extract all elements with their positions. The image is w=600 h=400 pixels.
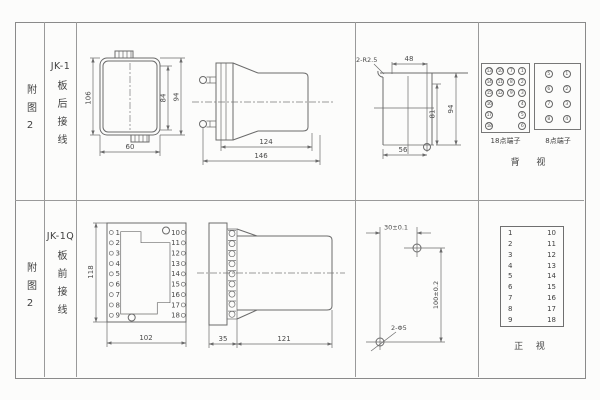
plate-term-label-13: 13 — [171, 260, 180, 268]
plate-mounting-hole-bottom — [128, 314, 135, 321]
plate-term-circle-3 — [109, 251, 113, 255]
note-2-phi5: 2-Φ5 — [391, 324, 407, 332]
connection-row: 211 — [501, 239, 563, 249]
jk1q-side-view — [197, 223, 345, 325]
terminal-row-18: 164 — [482, 99, 529, 108]
terminal-18-2: 2 — [518, 78, 526, 86]
plate-term-label-16: 16 — [171, 291, 180, 299]
screw-terminal — [229, 311, 235, 317]
wiring-label-rear: 板后接线 — [53, 80, 68, 152]
plate-term-circle-13 — [181, 262, 185, 266]
dim-81: 81 — [429, 110, 437, 119]
terminal-block-18: 131071141182151293164175186 — [481, 63, 530, 133]
plate-term-circle-5 — [109, 272, 113, 276]
terminal-18-17: 17 — [485, 111, 493, 119]
terminal-18-9: 9 — [507, 89, 515, 97]
conn-right-11: 11 — [547, 239, 556, 249]
appendix-label-top: 附图2 — [23, 84, 38, 139]
plate-term-label-18: 18 — [171, 312, 180, 320]
label-8-point: 8点端子 — [531, 136, 585, 146]
jk1-front-view — [100, 51, 160, 142]
screw-terminal — [229, 231, 235, 237]
terminal-8-7: 7 — [545, 100, 553, 108]
terminal-18-12: 12 — [496, 89, 504, 97]
notch-leader-line — [374, 64, 384, 74]
dim-94-cutout: 94 — [447, 104, 455, 113]
screw-terminal — [229, 291, 235, 297]
front-view-table-cell: 110211312413514615716817918 正 视 — [478, 200, 585, 378]
terminal-row-18: 175 — [482, 110, 529, 119]
plate-term-label-3: 3 — [116, 250, 120, 258]
conn-left-7: 7 — [508, 293, 512, 303]
connection-row: 716 — [501, 293, 563, 303]
plate-term-label-10: 10 — [171, 229, 180, 237]
terminal-row-18: 151293 — [482, 88, 529, 97]
conn-left-8: 8 — [508, 304, 512, 314]
connection-row: 615 — [501, 282, 563, 292]
terminal-row-8: 84 — [535, 114, 580, 123]
conn-left-3: 3 — [508, 250, 512, 260]
conn-right-16: 16 — [547, 293, 556, 303]
top-key-tab — [115, 51, 133, 58]
cell-model-bottom: JK-1Q 板前接线 — [45, 201, 76, 377]
appendix-label-bottom: 附图2 — [23, 262, 38, 317]
note-2-r2.5: 2-R2.5 — [356, 56, 377, 64]
side-view-dimensions: 124 146 — [203, 128, 320, 165]
drill-dimensions: 30±0.1 100±0.2 2-Φ5 — [366, 224, 441, 352]
drawing-sheet: 附图2 JK-1 板后接线 106 84 — [0, 0, 600, 400]
terminal-row-8: 51 — [535, 70, 580, 79]
plate-term-circle-10 — [181, 231, 185, 235]
plate-step-outline — [121, 232, 170, 314]
jk1-panel-cutout-drawing: 2-R2.5 48 81 94 56 — [355, 22, 478, 200]
plate-term-circle-7 — [109, 293, 113, 297]
bottom-key-tab — [131, 135, 149, 142]
terminal-18-11: 11 — [496, 78, 504, 86]
connection-table: 110211312413514615716817918 — [500, 226, 564, 327]
dim-118: 118 — [87, 265, 95, 278]
terminal-18-5: 5 — [518, 111, 526, 119]
plate-term-circle-6 — [109, 282, 113, 286]
conn-left-9: 9 — [508, 315, 512, 325]
screw-terminal — [229, 301, 235, 307]
plate-term-circle-12 — [181, 251, 185, 255]
terminal-18-14: 14 — [485, 78, 493, 86]
screw-terminal — [229, 241, 235, 247]
dim-56: 56 — [399, 146, 408, 154]
plate-term-label-11: 11 — [171, 239, 180, 247]
screw-terminal — [229, 251, 235, 257]
plate-term-label-5: 5 — [116, 270, 120, 278]
conn-right-15: 15 — [547, 282, 556, 292]
plate-term-circle-9 — [109, 313, 113, 317]
dim-48: 48 — [405, 55, 414, 63]
plate-term-label-8: 8 — [116, 301, 120, 309]
terminal-block-8: 51627384 — [534, 63, 581, 130]
jk1-side-view — [192, 63, 335, 140]
terminal-8-2: 2 — [563, 85, 571, 93]
plate-term-circle-4 — [109, 262, 113, 266]
dim-30: 30±0.1 — [384, 224, 408, 232]
dim-84: 84 — [160, 93, 168, 102]
mounting-flange — [216, 63, 233, 140]
front-flange — [209, 223, 227, 325]
terminal-18-16: 16 — [485, 100, 493, 108]
terminal-row-18: 186 — [482, 121, 529, 130]
screw-terminal — [229, 261, 235, 267]
dim-146: 146 — [254, 152, 268, 160]
conn-right-12: 12 — [547, 250, 556, 260]
plate-term-circle-2 — [109, 241, 113, 245]
screw-terminal — [229, 281, 235, 287]
terminal-18-10: 10 — [496, 67, 504, 75]
rear-view-terminals-cell: 131071141182151293164175186 51627384 18点… — [478, 22, 585, 200]
terminal-8-1: 1 — [563, 70, 571, 78]
terminal-8-4: 4 — [563, 115, 571, 123]
connection-row: 413 — [501, 261, 563, 271]
screw-terminal — [229, 271, 235, 277]
drilling-plan-drawing: 30±0.1 100±0.2 2-Φ5 — [355, 200, 478, 378]
conn-left-4: 4 — [508, 261, 512, 271]
front-view-label: 正 视 — [500, 339, 564, 352]
terminal-screw-bottom — [200, 121, 217, 128]
terminal-row-18: 131071 — [482, 66, 529, 75]
connection-row: 918 — [501, 315, 563, 325]
dim-60: 60 — [126, 143, 135, 151]
cutout-dimensions: 2-R2.5 48 81 94 56 — [356, 55, 456, 159]
cell-model-top: JK-1 板后接线 — [45, 23, 76, 200]
plate-term-label-7: 7 — [116, 291, 120, 299]
wiring-label-front: 板前接线 — [53, 250, 68, 322]
plate-term-label-2: 2 — [116, 239, 120, 247]
terminal-screws — [228, 230, 236, 317]
conn-right-10: 10 — [547, 228, 556, 238]
plate-term-circle-18 — [181, 313, 185, 317]
terminal-18-4: 4 — [518, 100, 526, 108]
connection-row: 817 — [501, 304, 563, 314]
conn-left-1: 1 — [508, 228, 512, 238]
hole-leader-line — [371, 332, 396, 351]
jk1q-front-plate: 123456789101112131415161718 — [107, 223, 186, 322]
conn-left-5: 5 — [508, 271, 512, 281]
terminal-18-13: 13 — [485, 67, 493, 75]
model-label-jk1q: JK-1Q — [47, 231, 74, 242]
cell-appendix-bottom: 附图2 — [16, 201, 44, 377]
plate-term-circle-14 — [181, 272, 185, 276]
conn-right-13: 13 — [547, 261, 556, 271]
terminal-screw-top — [200, 77, 217, 84]
dim-35: 35 — [219, 335, 228, 343]
dim-121: 121 — [277, 335, 290, 343]
conn-left-2: 2 — [508, 239, 512, 249]
terminal-8-6: 6 — [545, 85, 553, 93]
terminal-18-3: 3 — [518, 89, 526, 97]
conn-right-18: 18 — [547, 315, 556, 325]
dim-124: 124 — [259, 138, 273, 146]
plate-term-label-6: 6 — [116, 281, 121, 289]
label-18-point: 18点端子 — [478, 136, 533, 146]
jk1q-outline-drawing: 123456789101112131415161718 118 102 — [76, 200, 355, 378]
terminal-18-7: 7 — [507, 67, 515, 75]
model-label-jk1: JK-1 — [51, 61, 71, 72]
dim-102: 102 — [139, 334, 152, 342]
plate-mounting-hole-top — [163, 227, 170, 234]
plate-term-label-12: 12 — [171, 250, 180, 258]
conn-right-14: 14 — [547, 271, 556, 281]
plate-term-circle-1 — [109, 231, 113, 235]
jk1-outline-drawing: 106 84 94 60 — [76, 22, 355, 200]
terminal-18-1: 1 — [518, 67, 526, 75]
rear-view-label: 背 视 — [478, 155, 585, 168]
plate-term-label-4: 4 — [116, 260, 121, 268]
terminal-18-6: 6 — [518, 122, 526, 130]
plate-term-circle-17 — [181, 303, 185, 307]
plate-term-circle-8 — [109, 303, 113, 307]
cell-appendix-top: 附图2 — [16, 23, 44, 200]
plate-term-circle-15 — [181, 282, 185, 286]
terminal-8-3: 3 — [563, 100, 571, 108]
plate-term-label-15: 15 — [171, 281, 180, 289]
plate-term-label-9: 9 — [116, 312, 120, 320]
dim-106: 106 — [85, 91, 93, 105]
terminal-8-5: 5 — [545, 70, 553, 78]
connection-row: 312 — [501, 250, 563, 260]
dim-94-front: 94 — [173, 92, 181, 101]
connection-row: 110 — [501, 228, 563, 238]
plate-term-circle-16 — [181, 293, 185, 297]
connection-row: 514 — [501, 271, 563, 281]
terminal-8-8: 8 — [545, 115, 553, 123]
terminal-18-18: 18 — [485, 122, 493, 130]
terminal-18-15: 15 — [485, 89, 493, 97]
conn-left-6: 6 — [508, 282, 512, 292]
terminal-strip — [227, 229, 237, 319]
dim-100: 100±0.2 — [432, 281, 440, 309]
plate-term-label-17: 17 — [171, 301, 180, 309]
terminal-row-18: 141182 — [482, 77, 529, 86]
conn-right-17: 17 — [547, 304, 556, 314]
terminal-row-8: 73 — [535, 99, 580, 108]
terminal-18-8: 8 — [507, 78, 515, 86]
plate-term-label-1: 1 — [116, 229, 120, 237]
plate-term-label-14: 14 — [171, 270, 180, 278]
plate-term-circle-11 — [181, 241, 185, 245]
terminal-row-8: 62 — [535, 85, 580, 94]
